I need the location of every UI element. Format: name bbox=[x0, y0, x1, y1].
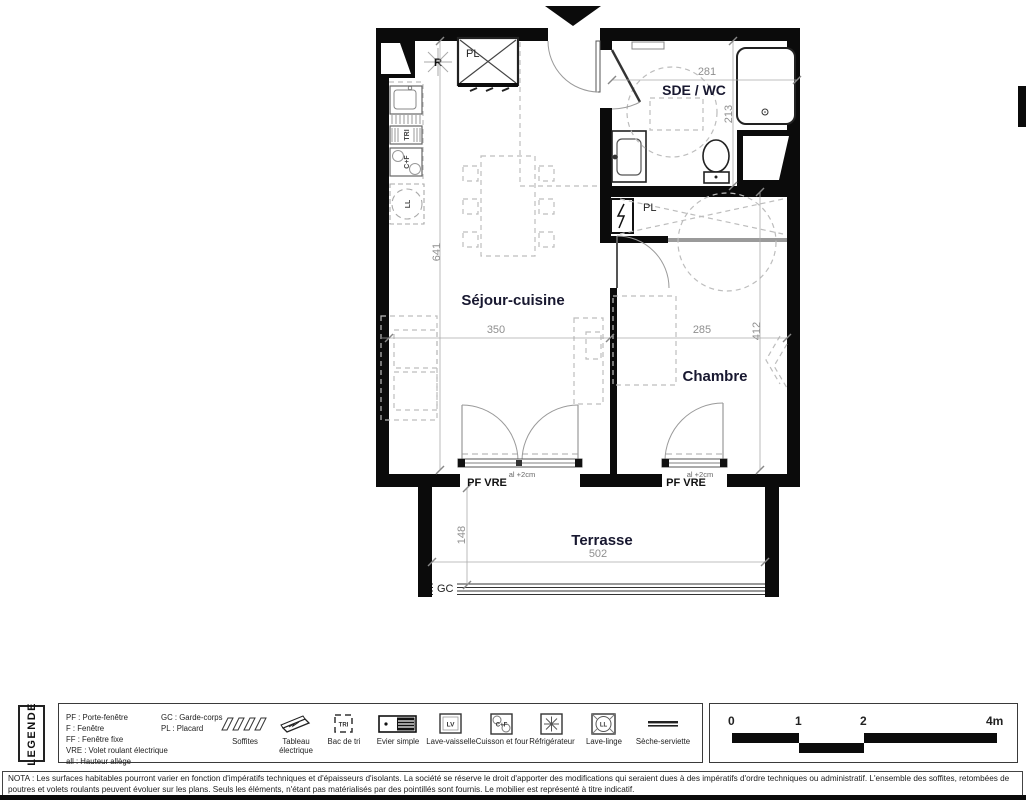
bac-tri-label: TRI bbox=[404, 129, 411, 140]
room-label-sde-wc: SDE / WC bbox=[662, 82, 726, 98]
dim-sejour-height: 641 bbox=[431, 243, 443, 261]
dim-sde-width: 281 bbox=[698, 66, 716, 78]
room-label-terrasse: Terrasse bbox=[571, 532, 632, 549]
duct-shaft-top-left bbox=[378, 40, 415, 78]
scale-tick-2: 2 bbox=[860, 714, 867, 728]
lave-linge-icon: LL bbox=[590, 712, 618, 736]
legend-title: LEGENDE bbox=[26, 702, 38, 766]
electrical-panel bbox=[611, 199, 633, 233]
cuisson-et-four-icon: C+F bbox=[489, 712, 515, 736]
recycling-bin-unit: TRI bbox=[390, 126, 422, 144]
dashed-furniture bbox=[381, 42, 787, 420]
legend-box: PF : Porte-fenêtre F : Fenêtre FF : Fenê… bbox=[58, 703, 703, 763]
toilet bbox=[703, 140, 729, 183]
room-label-sejour: Séjour-cuisine bbox=[461, 292, 564, 309]
legend-item-soffites: Soffites bbox=[218, 712, 272, 747]
pf-vre-sejour-label: PF VRE bbox=[467, 477, 507, 489]
svg-text:LV: LV bbox=[447, 722, 455, 729]
legend-abbreviations-col2: GC : Garde-corps PL : Placard bbox=[161, 712, 223, 734]
scale-tick-1: 1 bbox=[795, 714, 802, 728]
bathroom-door bbox=[612, 50, 640, 109]
dining-table bbox=[481, 156, 535, 256]
shower bbox=[737, 48, 795, 124]
scale-bar-box: 0 1 2 4m bbox=[709, 703, 1018, 763]
dim-sde-depth: 213 bbox=[723, 105, 735, 123]
legend-item-bac-tri: TRI Bac de tri bbox=[317, 712, 371, 747]
sink-unit bbox=[390, 86, 422, 124]
desk bbox=[574, 318, 603, 404]
legend-item-refrigerateur: Réfrigérateur bbox=[525, 712, 579, 747]
washbasin bbox=[611, 131, 646, 182]
scale-tick-0: 0 bbox=[728, 714, 735, 728]
dim-terrasse-depth: 148 bbox=[456, 526, 468, 544]
legend-item-lave-linge: LL Lave-linge bbox=[577, 712, 631, 747]
legend-item-lave-vaisselle: LV Lave-vaisselle bbox=[424, 712, 478, 747]
evier-simple-icon bbox=[377, 713, 419, 735]
dim-chambre-width: 285 bbox=[693, 324, 711, 336]
adjacent-wall-mark bbox=[1018, 86, 1026, 127]
seche-serviette-icon bbox=[645, 718, 681, 730]
guard-rail bbox=[432, 584, 765, 595]
legend-title-box: LEGENDE bbox=[18, 705, 45, 762]
svg-text:LL: LL bbox=[600, 723, 608, 729]
duct-shaft-bathroom bbox=[737, 130, 795, 186]
lave-linge-label: LL bbox=[405, 199, 412, 208]
legend-item-evier: Evier simple bbox=[371, 712, 425, 747]
floor-plan-page: TRI C+F LL R PL bbox=[0, 0, 1026, 800]
french-door-chambre bbox=[662, 403, 727, 467]
kitchen-closet: PL bbox=[458, 38, 518, 91]
french-door-sejour bbox=[458, 405, 582, 467]
cuisson-four-label: C+F bbox=[404, 155, 411, 169]
lave-vaisselle-icon: LV bbox=[438, 712, 464, 736]
legend-item-seche-serviette: Sèche-serviette bbox=[631, 712, 695, 747]
soffit-outline bbox=[520, 42, 600, 186]
bed bbox=[613, 296, 676, 385]
scale-segment bbox=[864, 733, 997, 743]
cooktop-oven-unit: C+F bbox=[390, 148, 422, 176]
room-label-chambre: Chambre bbox=[682, 368, 747, 385]
kitchen-counter: TRI C+F LL bbox=[389, 82, 424, 224]
svg-text:TRI: TRI bbox=[339, 723, 349, 729]
washing-machine-unit: LL bbox=[390, 184, 424, 224]
floor-plan-drawing: TRI C+F LL R PL bbox=[0, 0, 1026, 700]
nota-line1: NOTA : Les surfaces habitables pourront … bbox=[8, 774, 911, 783]
svg-text:C+F: C+F bbox=[496, 723, 508, 729]
legend-abbreviations-col1: PF : Porte-fenêtre F : Fenêtre FF : Fenê… bbox=[66, 712, 168, 767]
high-window bbox=[632, 42, 664, 49]
pf-vre-chambre-label: PF VRE bbox=[666, 477, 706, 489]
allege-sejour-label: al +2cm bbox=[509, 470, 535, 479]
placard-kitchen-label: PL bbox=[466, 48, 479, 60]
tableau-electrique-icon bbox=[279, 713, 313, 735]
bottom-border-bar bbox=[0, 795, 1026, 800]
soffites-icon bbox=[220, 716, 270, 732]
scale-segment bbox=[799, 743, 864, 753]
bedroom-door bbox=[617, 236, 669, 288]
legend-item-cuisson: C+F Cuisson et four bbox=[475, 712, 529, 747]
entrance-door bbox=[548, 41, 600, 92]
dim-chambre-depth: 412 bbox=[751, 322, 763, 340]
garde-corps-label: GC bbox=[437, 583, 454, 595]
refrigerateur-icon bbox=[539, 712, 565, 736]
bac-de-tri-icon: TRI bbox=[332, 713, 356, 735]
refrigerateur-label: R bbox=[434, 57, 442, 69]
legend-item-tableau: Tableau électrique bbox=[269, 712, 323, 756]
refrigerator-symbol: R bbox=[424, 48, 452, 76]
entrance-arrow-icon bbox=[545, 6, 601, 26]
placard-chambre-label: PL bbox=[643, 202, 656, 214]
dim-sejour-width: 350 bbox=[487, 324, 505, 336]
scale-tick-4m: 4m bbox=[986, 714, 1003, 728]
nota-box: NOTA : Les surfaces habitables pourront … bbox=[2, 771, 1023, 796]
dim-terrasse-width: 502 bbox=[589, 548, 607, 560]
scale-segment bbox=[732, 733, 799, 743]
